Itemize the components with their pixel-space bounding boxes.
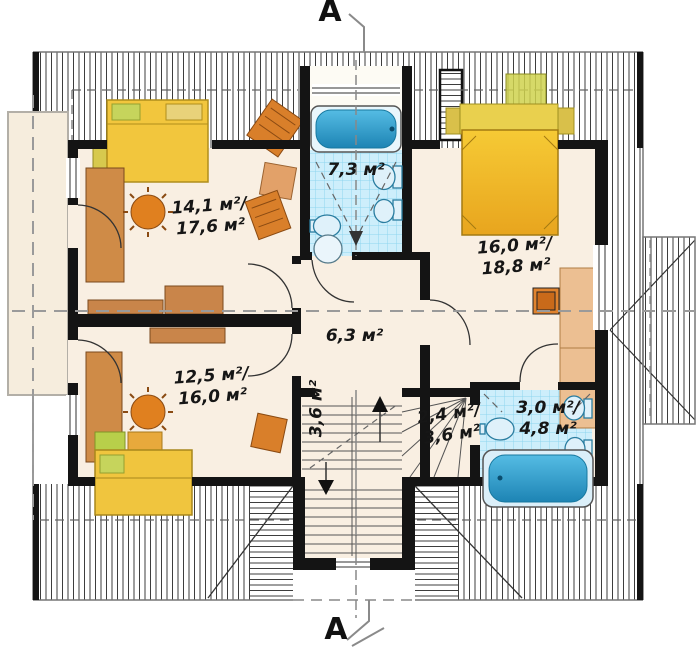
window-stair-dormer	[336, 558, 370, 570]
desk-study	[86, 168, 124, 282]
chair-study	[123, 187, 173, 237]
toilet-small	[564, 396, 593, 420]
bed-bedroom	[446, 104, 574, 235]
bathtub-small	[483, 450, 593, 507]
water-heater	[314, 235, 342, 263]
pouf-room2	[251, 413, 287, 452]
window-left-top	[66, 158, 80, 198]
floor-plan: A A 14,1 м²/ 17,6 м² 7,3 м² 16,0 м²/ 18,…	[0, 0, 700, 655]
section-elbow-top	[349, 14, 364, 52]
window-left-bottom	[66, 395, 80, 435]
hip-roof-bay	[643, 237, 695, 424]
left-annex-roof	[8, 112, 68, 395]
floor-plan-drawing	[0, 0, 700, 655]
bidet-main	[374, 200, 402, 223]
toilet-main	[373, 165, 402, 190]
section-elbow-bottom	[347, 600, 384, 646]
chair-room2	[123, 387, 173, 437]
window-right-bedroom	[593, 245, 610, 330]
